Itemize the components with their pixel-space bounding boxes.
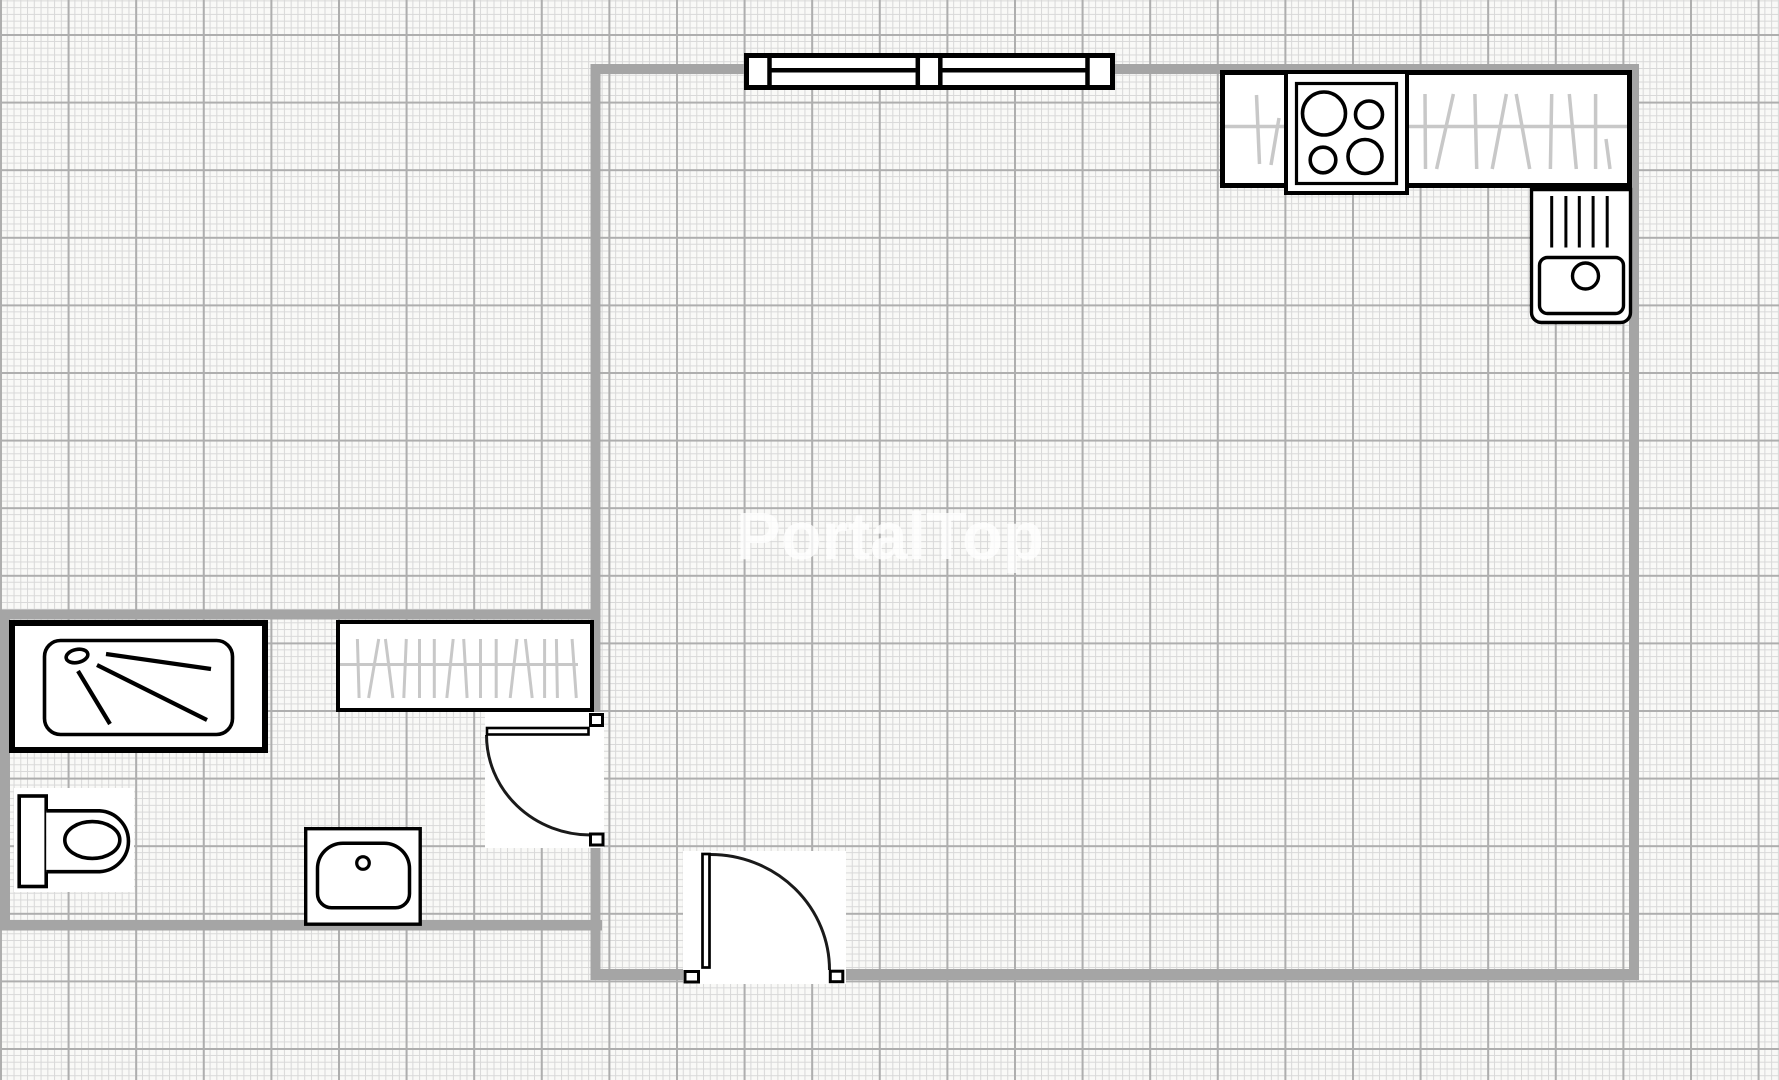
svg-text:PortalTop: PortalTop [736,499,1044,574]
